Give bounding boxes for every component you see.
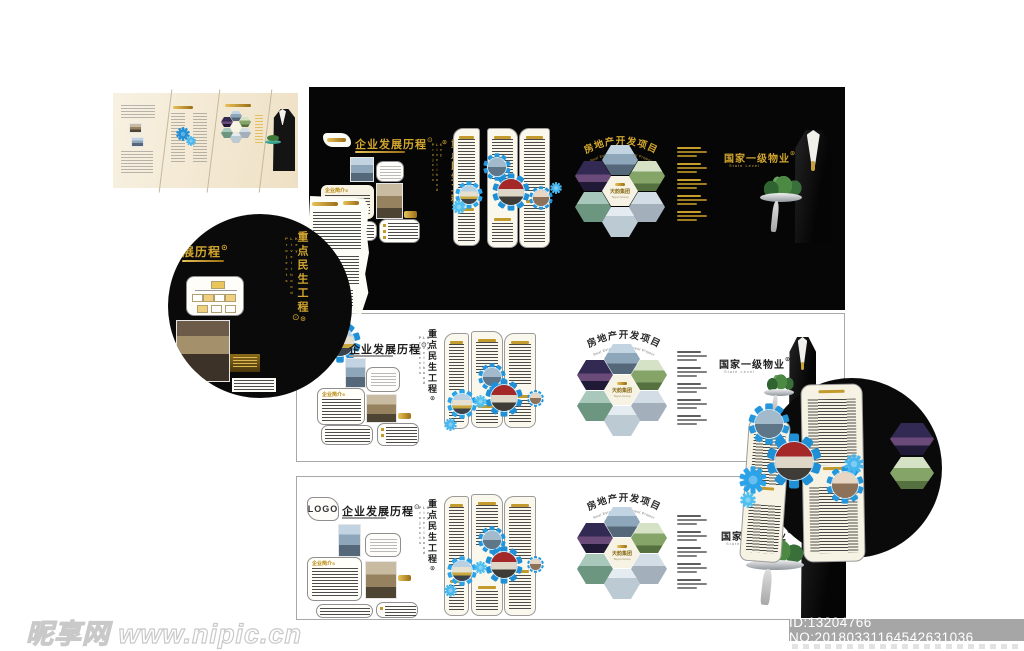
gear-icon <box>739 466 767 494</box>
bullet <box>381 434 384 437</box>
vertical-title-livelihood: 重点民生工程⊙ <box>426 499 439 575</box>
group-logo-icon <box>615 183 625 186</box>
circle-mark: ⊙ <box>345 188 348 193</box>
panel-header <box>478 586 496 589</box>
text-lines <box>322 399 361 422</box>
sketch-lines <box>370 539 397 553</box>
org-chart-node <box>214 294 225 302</box>
project-item <box>677 383 707 393</box>
butler-arm <box>760 569 773 605</box>
project-item <box>677 351 707 361</box>
group-name: 天韵集团 <box>604 387 640 394</box>
project-item <box>677 415 707 425</box>
logo-blob <box>323 133 351 147</box>
gear-photo <box>498 179 524 205</box>
text-lines <box>312 568 358 597</box>
gear-photo <box>530 393 541 404</box>
intro-header: 企业简介⊙ <box>308 558 361 567</box>
project-item <box>677 179 707 189</box>
text-lines <box>449 344 464 392</box>
hex-cluster: 天韵集团 Tayun Group <box>568 341 674 449</box>
text-lines <box>476 591 498 611</box>
project-item <box>677 211 707 221</box>
butler-arm <box>770 201 780 232</box>
city-model <box>765 372 794 390</box>
org-chart-node <box>197 305 208 313</box>
gold-fragment <box>312 202 338 206</box>
group-name: 天韵集团 <box>604 550 640 557</box>
text-lines <box>385 606 416 616</box>
project-list <box>677 145 707 227</box>
title-underline <box>349 355 393 357</box>
mini-gold-list <box>255 115 263 145</box>
group-name-en: Tayun Group <box>604 557 640 561</box>
text-lines <box>746 504 781 554</box>
gear-photo <box>832 472 858 498</box>
gear-icon <box>844 454 864 474</box>
project-list <box>677 349 707 431</box>
project-item <box>677 579 707 589</box>
wall-1-banner: 企业发展历程⊙ 企业简介⊙ Key Livelihood Projects 重点… <box>309 87 845 310</box>
intro-header: 企业简介⊙ <box>321 185 374 194</box>
hex-cluster: 天韵集团 Tayun Group <box>566 142 672 250</box>
text-lines <box>386 427 417 443</box>
group-logo-icon <box>617 382 627 385</box>
bullet <box>383 236 386 239</box>
gear-icon <box>444 418 457 431</box>
photo <box>345 358 366 388</box>
mini-text-block <box>121 105 155 119</box>
gear-photo <box>533 190 549 206</box>
logo-gold-mark <box>327 138 346 142</box>
text-lines <box>388 223 418 240</box>
intro-header-text: 企业简介 <box>325 188 345 194</box>
gear-icon <box>474 395 487 408</box>
vertical-title-text: 重点民生工程 <box>427 499 437 565</box>
project-list <box>677 513 707 595</box>
group-name: 天韵集团 <box>602 188 638 195</box>
photo <box>350 157 374 182</box>
bullet <box>381 428 384 431</box>
intro-header-text: 企业简介 <box>312 561 332 567</box>
property-subtitle: State Level <box>729 163 760 168</box>
circle-mark: ⊙ <box>429 395 435 404</box>
vertical-title-livelihood: 重点民生工程⊙ <box>426 329 439 405</box>
vertical-title-livelihood: 重点民生工程⊙ <box>294 231 310 341</box>
intro-header-text: 企业简介 <box>322 392 342 398</box>
circle-mark: ⊙ <box>441 139 447 148</box>
bullet <box>383 230 386 233</box>
project-item <box>677 367 707 377</box>
hex-cluster: 天韵集团 Tayun Group <box>568 504 674 612</box>
circle-mark: ⊙ <box>342 392 345 397</box>
mini-hex <box>230 111 242 121</box>
caption-chip <box>232 378 276 392</box>
org-chart-node <box>192 294 203 302</box>
text-lines <box>325 429 370 442</box>
photo <box>366 394 397 423</box>
org-chart-line <box>195 290 237 291</box>
bullet <box>383 224 386 227</box>
gear-photo <box>452 394 472 414</box>
sketch-box <box>365 533 401 557</box>
property-subtitle: State Level <box>724 369 755 374</box>
photo <box>376 183 403 219</box>
mini-gold-title <box>173 106 193 109</box>
project-item <box>677 195 707 205</box>
intro-panel: 企业简介⊙ <box>317 388 365 425</box>
divider-line <box>207 89 221 192</box>
text-box <box>379 219 420 243</box>
gold-chip <box>398 575 411 581</box>
gear-icon <box>186 136 196 146</box>
gold-box <box>230 354 260 372</box>
magnified-title-fragment: 展历程⊙ <box>182 243 229 260</box>
mini-photo <box>129 123 142 133</box>
text-lines <box>234 380 274 390</box>
photo <box>338 524 361 557</box>
bullet <box>380 607 383 610</box>
org-chart-node <box>225 294 236 302</box>
org-chart-node <box>203 294 214 302</box>
text-box <box>316 604 373 618</box>
circle-mark: ⊙ <box>299 315 306 326</box>
text-box <box>321 425 373 445</box>
group-logo-icon <box>617 545 627 548</box>
intro-panel: 企业简介⊙ <box>307 557 362 601</box>
gear-photo <box>491 385 517 411</box>
project-item <box>677 563 707 573</box>
title-dev-history-text: 企业发展历程 <box>355 139 427 151</box>
title-fragment-text: 展历程 <box>182 245 221 259</box>
title-underline <box>342 517 386 519</box>
watermark-cropped-row: 昵享网 www.nipic.cn <box>26 646 366 650</box>
photo <box>365 561 397 599</box>
group-name-en: Tayun Group <box>602 195 638 199</box>
sketch-lines <box>371 373 396 388</box>
circle-mark: ⊙ <box>332 561 335 566</box>
gold-fragment <box>343 201 359 205</box>
butler-tie <box>811 161 815 171</box>
gear-photo <box>530 559 541 570</box>
panel-header <box>819 390 845 393</box>
vertical-title-text: 重点民生工程 <box>296 231 308 315</box>
panel-header <box>494 218 511 221</box>
title-underline <box>355 151 405 153</box>
text-box <box>376 602 418 618</box>
gear-icon <box>550 182 562 194</box>
project-item <box>677 531 707 541</box>
text-box <box>377 423 419 446</box>
watermark-partial: 昵享网 www.nipic.cn <box>26 646 366 650</box>
vertical-title-text: 重点民生工程 <box>427 329 437 395</box>
sketch-lines <box>380 166 401 179</box>
text-lines <box>458 213 475 241</box>
gear-icon <box>452 200 466 214</box>
circle-mark: ⊙ <box>429 565 435 574</box>
logo-box: LOGO <box>307 497 339 521</box>
org-chart-node <box>225 305 236 313</box>
thumbnail-preview <box>113 93 298 188</box>
image-id-badge: ID:13204766 NO:20180331164542631036 <box>789 619 1024 641</box>
city-model <box>761 173 801 196</box>
project-item <box>677 163 707 173</box>
sketch-box <box>376 161 404 182</box>
project-item <box>677 147 707 157</box>
mini-gold-arc <box>225 104 251 107</box>
mini-photo <box>131 137 144 147</box>
project-item <box>677 399 707 409</box>
circle-mark: ⊙ <box>292 312 300 323</box>
text-lines <box>492 223 513 243</box>
butler-tie <box>801 362 804 370</box>
gold-chip <box>404 211 417 218</box>
hex-photo <box>890 457 934 489</box>
gold-underline <box>182 260 224 262</box>
gear-icon <box>474 561 487 574</box>
gold-box-text <box>233 357 257 369</box>
mini-city <box>267 135 279 141</box>
sketch-box <box>366 367 400 392</box>
text-lines <box>320 608 370 616</box>
gear-icon <box>444 584 457 597</box>
gold-chip <box>398 413 411 419</box>
gear-photo <box>491 552 517 578</box>
serving-tray <box>764 389 794 396</box>
left-detail-circle: 展历程⊙ Key Livelihood Projects 重点民生工程⊙ ⊙ <box>168 214 352 398</box>
mini-text-block <box>121 151 153 173</box>
faded-id-row <box>792 644 1020 649</box>
gear-photo <box>775 442 813 480</box>
circle-mark: ⊙ <box>221 243 229 252</box>
org-chart-panel <box>186 276 244 316</box>
group-name-en: Tayun Group <box>604 394 640 398</box>
gear-photo <box>452 561 472 581</box>
gear-icon <box>740 492 756 508</box>
meeting-photo <box>176 320 230 382</box>
hex-photo <box>890 423 934 455</box>
project-item <box>677 547 707 557</box>
org-chart-node <box>211 305 222 313</box>
page: { "design": { "titles": { "dev_history":… <box>0 0 1024 650</box>
intro-header: 企业简介⊙ <box>318 389 364 398</box>
org-chart-root <box>211 281 225 289</box>
project-item <box>677 515 707 525</box>
butler-figure <box>760 130 832 243</box>
title-dev-history: 企业发展历程⊙ <box>355 136 434 152</box>
